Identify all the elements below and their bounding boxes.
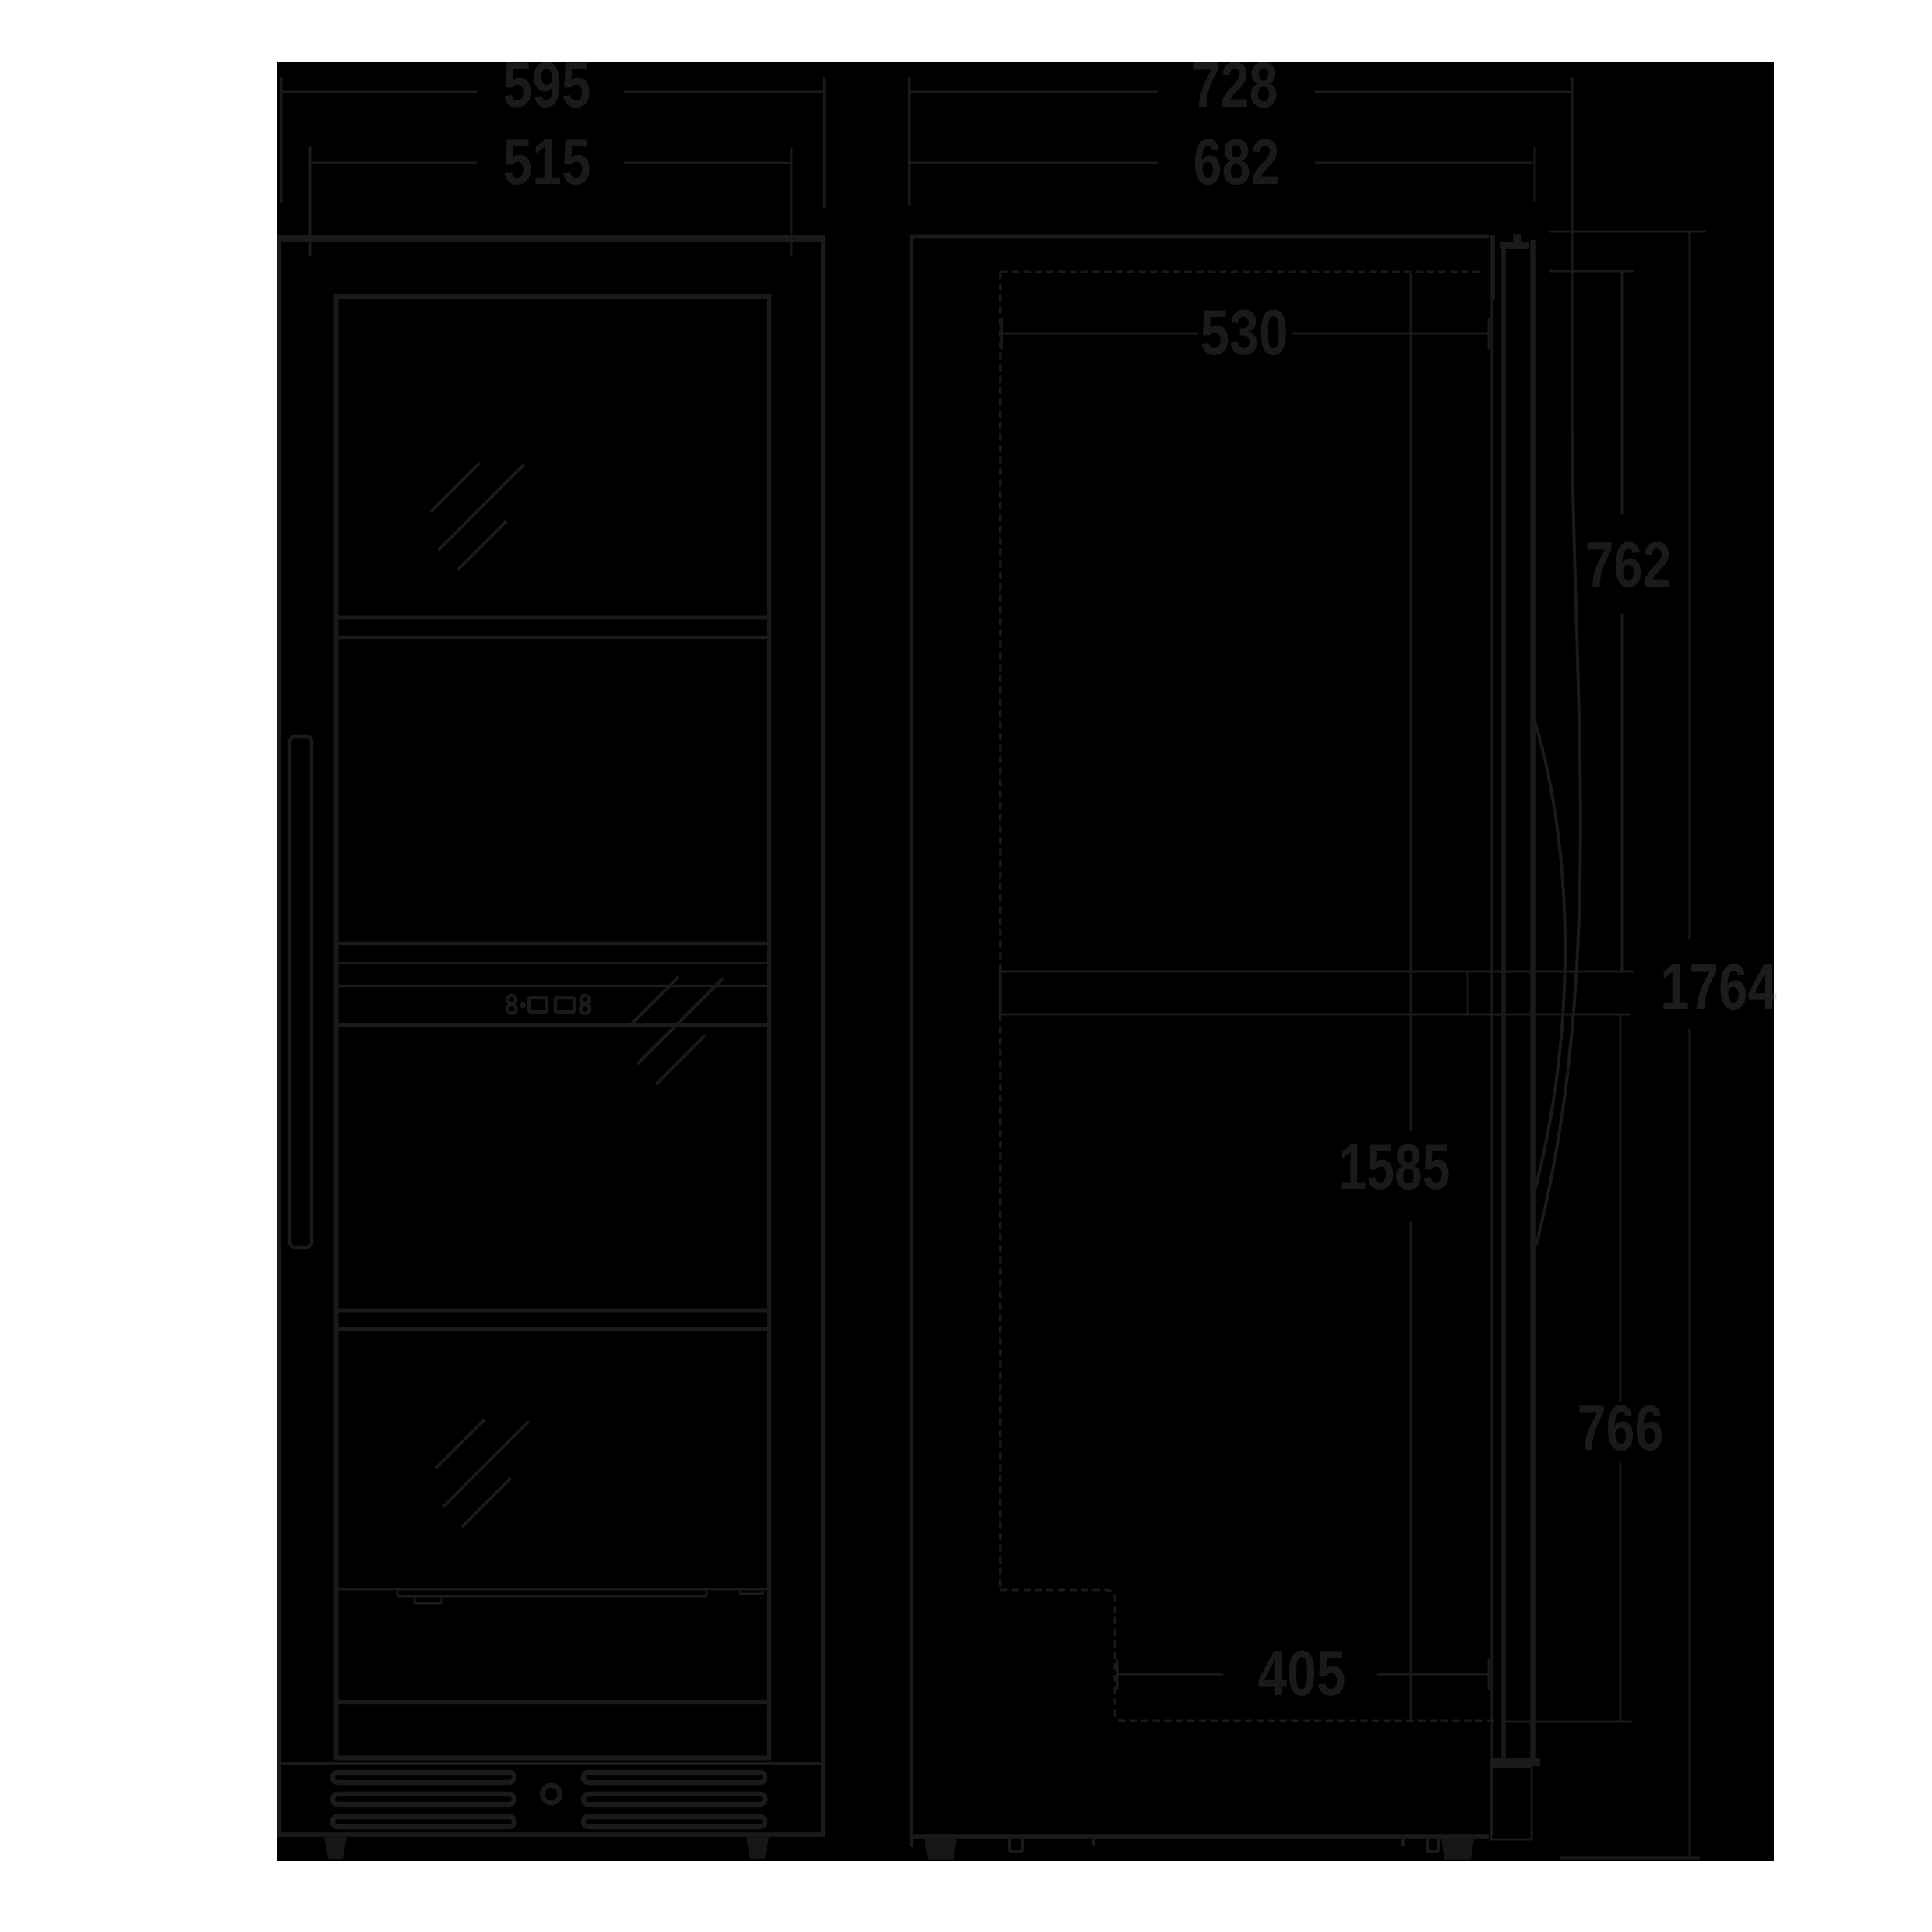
svg-text:728: 728 bbox=[1192, 49, 1278, 121]
svg-text:1764: 1764 bbox=[1660, 951, 1777, 1023]
svg-text:762: 762 bbox=[1585, 529, 1672, 601]
svg-text:595: 595 bbox=[503, 49, 591, 121]
svg-text:1585: 1585 bbox=[1339, 1131, 1451, 1203]
svg-text:530: 530 bbox=[1200, 297, 1289, 368]
svg-text:405: 405 bbox=[1258, 1638, 1346, 1709]
svg-text:766: 766 bbox=[1578, 1392, 1664, 1464]
svg-text:682: 682 bbox=[1193, 126, 1280, 198]
svg-text:515: 515 bbox=[503, 126, 591, 198]
